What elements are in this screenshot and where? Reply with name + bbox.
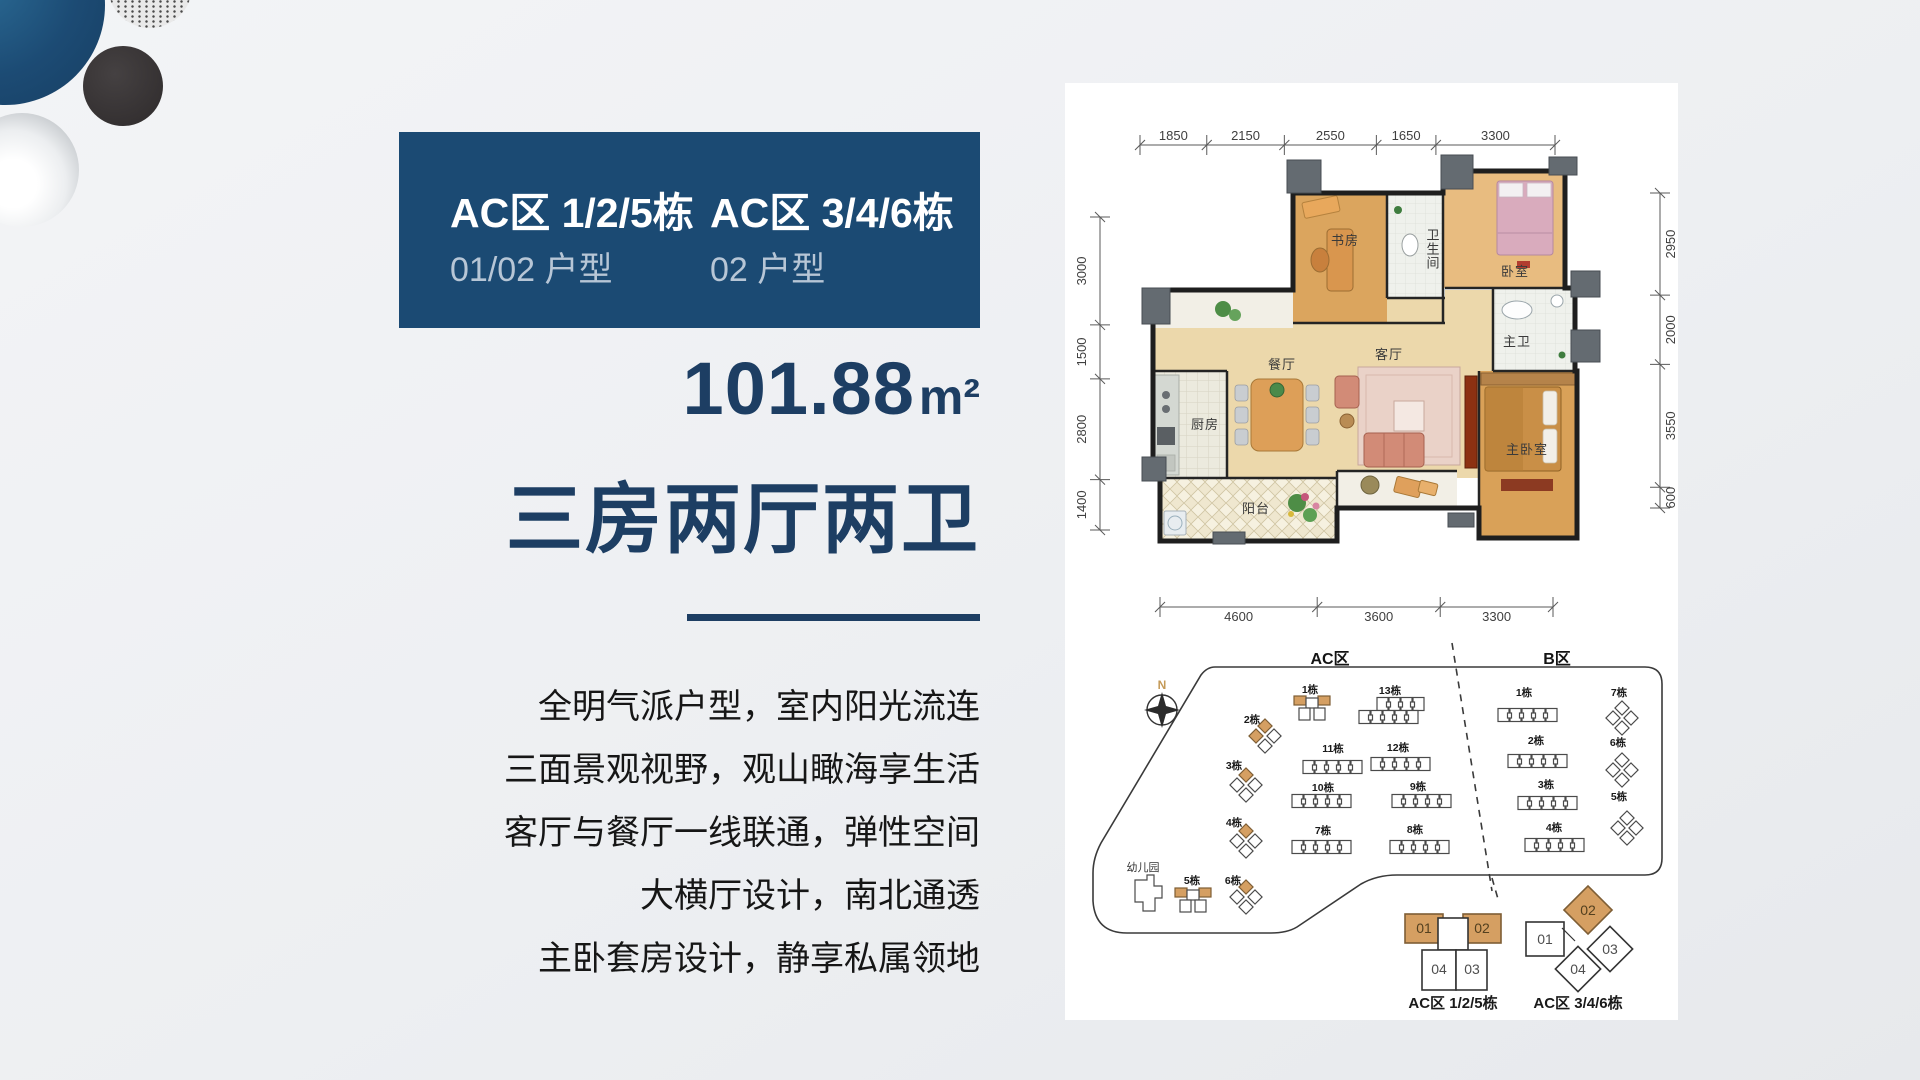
building-1栋: 1栋 bbox=[1498, 686, 1557, 722]
legend-unit-01: 01 bbox=[1416, 920, 1432, 936]
building-label: 7栋 bbox=[1315, 824, 1332, 837]
decor-dark-circle bbox=[83, 46, 163, 126]
legend-caption-125: AC区 1/2/5栋 bbox=[1408, 994, 1497, 1012]
dimension-value: 3300 bbox=[1481, 128, 1510, 143]
building-label: 5栋 bbox=[1184, 874, 1201, 887]
siteplan: AC区 B区 N 幼儿园 1栋2栋3栋4栋5栋6栋7栋8栋9栋10栋11栋 bbox=[1093, 643, 1662, 933]
building-label: 12栋 bbox=[1387, 741, 1410, 754]
building-label: 11栋 bbox=[1322, 742, 1344, 755]
headline-divider bbox=[687, 614, 980, 621]
room-label-bath: 卫生间 bbox=[1425, 228, 1440, 270]
building-5栋: 5栋 bbox=[1175, 874, 1211, 912]
building-9栋: 9栋 bbox=[1392, 780, 1451, 808]
description-line: 大横厅设计，南北通透 bbox=[300, 865, 980, 928]
building-12栋: 12栋 bbox=[1371, 741, 1430, 771]
unit-legend: 01 02 04 03 AC区 1/2/5栋 01 02 03 04 bbox=[1405, 886, 1633, 1012]
dimension-value: 2150 bbox=[1231, 128, 1260, 143]
decor-pattern-circle bbox=[108, 0, 192, 28]
card-col2-title: AC区 3/4/6栋 bbox=[710, 190, 954, 236]
unit-info-card: AC区 1/2/5栋 01/02 户型 AC区 3/4/6栋 02 户型 bbox=[399, 132, 980, 328]
building-3栋: 3栋 bbox=[1518, 778, 1577, 810]
room-label-dining: 餐厅 bbox=[1268, 357, 1296, 372]
dimension-value: 2000 bbox=[1663, 315, 1678, 344]
description-line: 客厅与餐厅一线联通，弹性空间 bbox=[300, 802, 980, 865]
description-line: 三面景观视野，观山瞰海享生活 bbox=[300, 739, 980, 802]
area-unit: m² bbox=[919, 369, 980, 425]
dimension-value: 3550 bbox=[1663, 411, 1678, 440]
plans-panel: 书房 卫生间 卧室 主卫 餐厅 客厅 厨房 阳台 主卧室 18502150255… bbox=[1065, 83, 1678, 1020]
description-block: 全明气派户型，室内阳光流连 三面景观视野，观山瞰海享生活 客厅与餐厅一线联通，弹… bbox=[300, 676, 980, 991]
layout-headline: 三房两厅两卫 bbox=[330, 478, 980, 563]
area-value: 101.88 bbox=[683, 347, 915, 430]
legend-caption-346: AC区 3/4/6栋 bbox=[1533, 994, 1622, 1012]
building-10栋: 10栋 bbox=[1292, 781, 1351, 808]
zone-label-ac: AC区 bbox=[1310, 650, 1349, 668]
building-11栋: 11栋 bbox=[1303, 742, 1362, 774]
building-13栋: 13栋 bbox=[1359, 684, 1424, 724]
legend-unit-02b: 02 bbox=[1580, 902, 1596, 918]
compass-n-label: N bbox=[1158, 678, 1167, 692]
floorplan: 书房 卫生间 卧室 主卫 餐厅 客厅 厨房 阳台 主卧室 18502150255… bbox=[1074, 128, 1678, 624]
building-label: 13栋 bbox=[1379, 684, 1402, 697]
building-label: 2栋 bbox=[1244, 713, 1261, 726]
building-4栋: 4栋 bbox=[1525, 821, 1584, 852]
unit-area: 101.88m² bbox=[399, 352, 980, 426]
legend-unit-04b: 04 bbox=[1570, 961, 1586, 977]
building-7栋: 7栋 bbox=[1292, 824, 1351, 854]
legend-unit-01b: 01 bbox=[1537, 931, 1553, 947]
card-column-1: AC区 1/2/5栋 01/02 户型 bbox=[450, 190, 710, 328]
description-line: 主卧套房设计，静享私属领地 bbox=[300, 928, 980, 991]
building-2栋: 2栋 bbox=[1244, 713, 1281, 753]
room-label-living: 客厅 bbox=[1375, 347, 1403, 362]
card-col1-subtitle: 01/02 户型 bbox=[450, 250, 710, 290]
dimension-value: 1500 bbox=[1074, 337, 1089, 366]
building-label: 1栋 bbox=[1302, 683, 1319, 696]
room-label-balcony: 阳台 bbox=[1242, 501, 1270, 516]
building-label: 3栋 bbox=[1538, 778, 1555, 791]
building-label: 8栋 bbox=[1407, 823, 1424, 836]
dimension-value: 1850 bbox=[1159, 128, 1188, 143]
legend-unit-03: 03 bbox=[1464, 961, 1480, 977]
building-2栋: 2栋 bbox=[1508, 734, 1567, 768]
card-column-2: AC区 3/4/6栋 02 户型 bbox=[710, 190, 954, 328]
room-label-master-bedroom: 主卧室 bbox=[1506, 442, 1548, 457]
room-label-bedroom: 卧室 bbox=[1501, 264, 1529, 279]
building-7栋: 7栋 bbox=[1606, 686, 1638, 735]
zone-divider-dashed-tail bbox=[1492, 878, 1498, 899]
building-label: 7栋 bbox=[1611, 686, 1628, 699]
room-label-kitchen: 厨房 bbox=[1191, 417, 1219, 432]
building-label: 4栋 bbox=[1226, 816, 1243, 829]
building-5栋: 5栋 bbox=[1611, 790, 1643, 845]
kindergarten-label: 幼儿园 bbox=[1127, 861, 1160, 874]
description-line: 全明气派户型，室内阳光流连 bbox=[300, 676, 980, 739]
zone-label-b: B区 bbox=[1543, 650, 1571, 668]
building-6栋: 6栋 bbox=[1225, 874, 1262, 914]
building-3栋: 3栋 bbox=[1226, 759, 1262, 802]
siteplan-buildings: 1栋2栋3栋4栋5栋6栋7栋8栋9栋10栋11栋12栋13栋1栋2栋3栋4栋5栋… bbox=[1175, 683, 1643, 914]
building-8栋: 8栋 bbox=[1390, 823, 1449, 854]
dimension-value: 1650 bbox=[1392, 128, 1421, 143]
dimension-value: 2800 bbox=[1074, 415, 1089, 444]
building-label: 2栋 bbox=[1528, 734, 1545, 747]
building-label: 6栋 bbox=[1225, 874, 1242, 887]
building-label: 9栋 bbox=[1410, 780, 1427, 793]
building-label: 4栋 bbox=[1546, 821, 1563, 834]
dimension-value: 3600 bbox=[1364, 609, 1393, 624]
building-label: 10栋 bbox=[1312, 781, 1335, 794]
kindergarten-shape bbox=[1135, 875, 1162, 911]
dimension-value: 600 bbox=[1663, 487, 1678, 509]
dimension-value: 3300 bbox=[1482, 609, 1511, 624]
dimension-value: 2950 bbox=[1663, 230, 1678, 259]
building-label: 3栋 bbox=[1226, 759, 1243, 772]
decor-silver-circle bbox=[0, 113, 79, 227]
building-4栋: 4栋 bbox=[1226, 816, 1262, 858]
dimension-value: 2550 bbox=[1316, 128, 1345, 143]
card-col1-title: AC区 1/2/5栋 bbox=[450, 190, 710, 236]
building-label: 5栋 bbox=[1611, 790, 1628, 803]
legend-unit-03b: 03 bbox=[1602, 941, 1618, 957]
kindergarten: 幼儿园 bbox=[1127, 861, 1163, 911]
building-label: 6栋 bbox=[1610, 736, 1627, 749]
dimension-value: 4600 bbox=[1224, 609, 1253, 624]
room-label-study: 书房 bbox=[1331, 233, 1359, 248]
legend-unit-02: 02 bbox=[1474, 920, 1490, 936]
legend-unit-04: 04 bbox=[1431, 961, 1447, 977]
building-label: 1栋 bbox=[1516, 686, 1533, 699]
building-1栋: 1栋 bbox=[1294, 683, 1330, 720]
legend-cross-tower: 01 02 04 03 AC区 1/2/5栋 bbox=[1405, 914, 1501, 1012]
zone-divider-dashed-line bbox=[1452, 643, 1492, 891]
legend-pinwheel-tower: 01 02 03 04 AC区 3/4/6栋 bbox=[1526, 886, 1633, 1012]
building-6栋: 6栋 bbox=[1606, 736, 1638, 787]
dimension-value: 1400 bbox=[1074, 490, 1089, 519]
room-label-master-bath: 主卫 bbox=[1503, 334, 1531, 349]
dimension-value: 3000 bbox=[1074, 257, 1089, 286]
card-col2-subtitle: 02 户型 bbox=[710, 250, 954, 290]
